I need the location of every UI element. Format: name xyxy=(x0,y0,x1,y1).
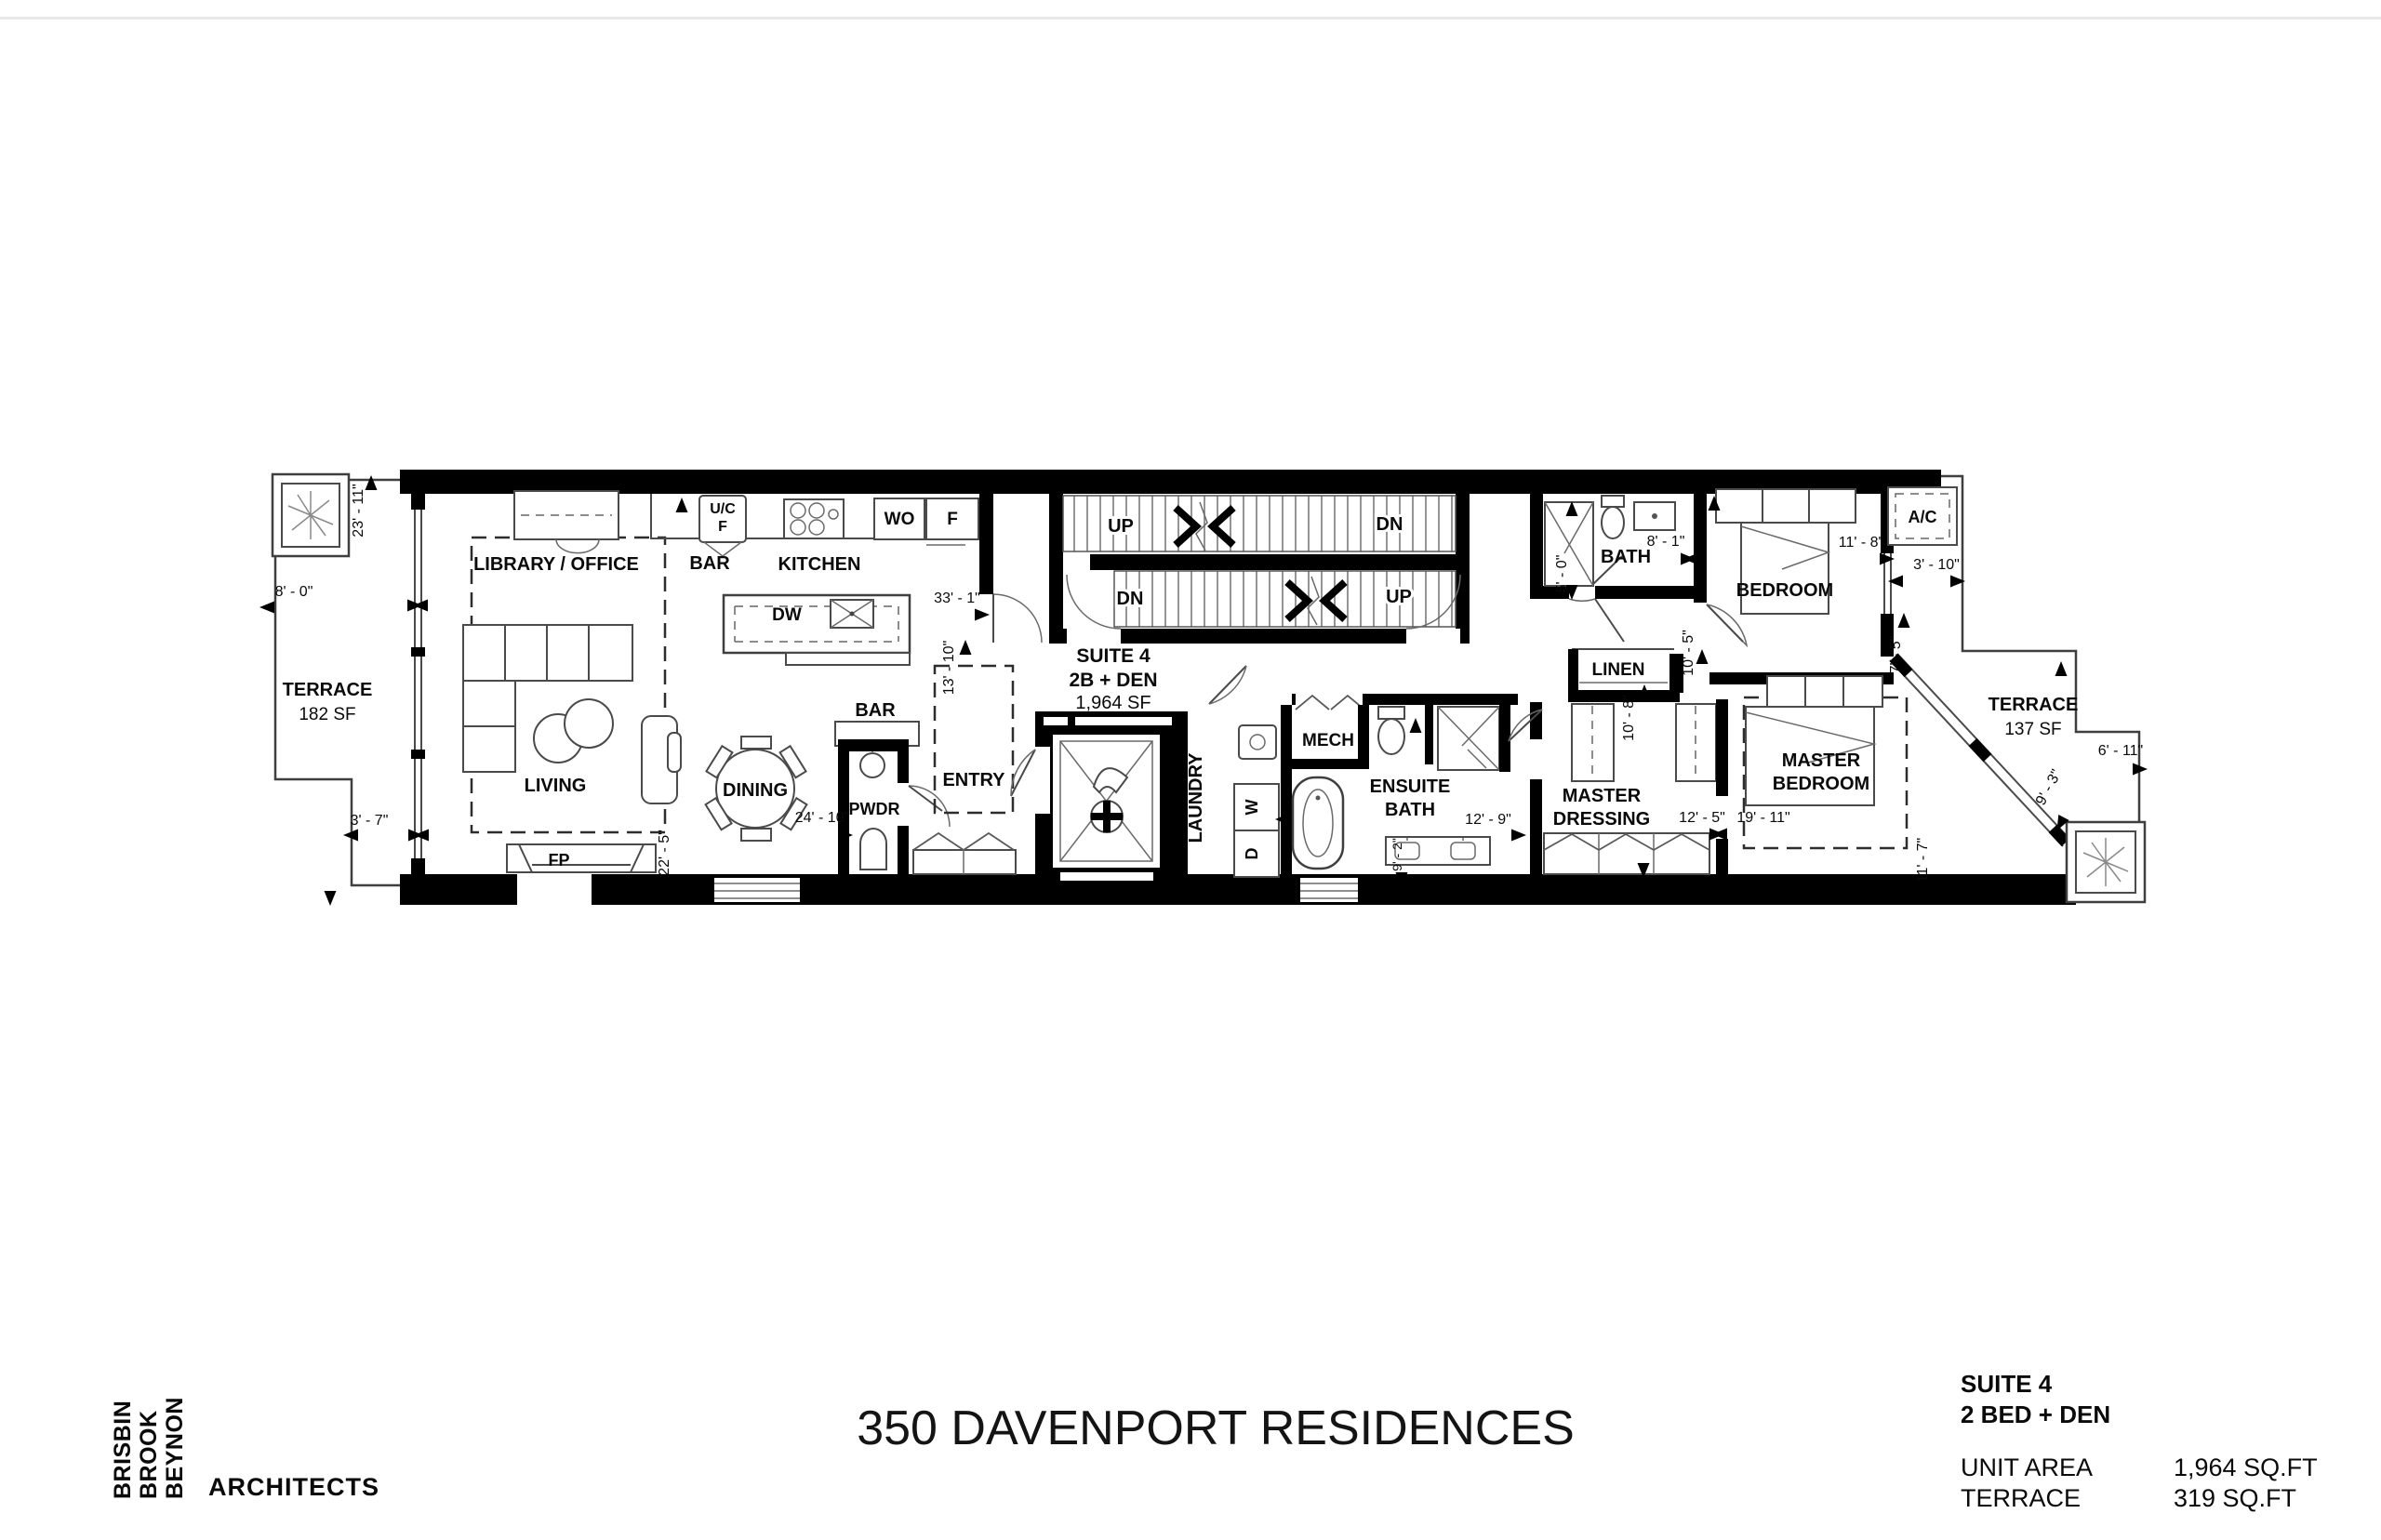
washer-label: W xyxy=(1243,800,1261,816)
fireplace-label: FP xyxy=(548,851,569,870)
desk-chair xyxy=(556,539,599,553)
entry-closet xyxy=(913,833,1016,874)
bar-dining-label: BAR xyxy=(855,700,896,721)
kitchen: U/C F WO F BAR KITCHEN xyxy=(651,494,979,665)
dim: 19' - 11" xyxy=(1736,810,1789,826)
logo-brisbin: BRISBIN xyxy=(110,1401,136,1499)
ac-label: A/C xyxy=(1909,508,1937,526)
elevator xyxy=(1011,711,1188,886)
bath-toilet xyxy=(1602,496,1624,538)
dim: 12' - 5" xyxy=(1679,810,1725,826)
info-terrace-value: 319 SQ.FT xyxy=(2174,1484,2296,1512)
fireplace: FP xyxy=(507,844,656,872)
terrace-left-area: 182 SF xyxy=(299,705,355,724)
dim: 8' - 1" xyxy=(1647,534,1685,550)
uc-f-label: F xyxy=(718,519,727,535)
wall-oven: WO xyxy=(874,498,924,539)
dim: 7' - 5" xyxy=(1888,636,1904,674)
suite-info-block: SUITE 4 2 BED + DEN UNIT AREA 1,964 SQ.F… xyxy=(1961,1370,2318,1512)
living-label: LIVING xyxy=(525,776,587,796)
kitchen-label: KITCHEN xyxy=(778,554,861,575)
hall-partition xyxy=(979,494,1042,643)
stair-up-label: UP xyxy=(1386,587,1412,607)
suite-area: 1,964 SF xyxy=(1075,693,1151,713)
dim: 9' - 3" xyxy=(2033,767,2065,808)
cooktop xyxy=(784,499,844,538)
staircase: UP DN DN UP xyxy=(1049,494,1470,644)
dim: 13' - 10" xyxy=(941,641,957,696)
powder-toilet xyxy=(860,829,886,870)
laundry-label: LAUNDRY xyxy=(1186,752,1206,843)
fridge: F xyxy=(926,498,978,545)
info-terrace-label: TERRACE xyxy=(1961,1484,2081,1512)
ensuite-label-1: ENSUITE xyxy=(1370,777,1451,797)
ensuite-shower xyxy=(1438,707,1499,770)
library-office-den: LIBRARY / OFFICE LIVING FP xyxy=(463,491,681,872)
bar-powder-entry: BAR PWDR ENTRY xyxy=(835,666,1016,874)
master-dressing-label-2: DRESSING xyxy=(1553,809,1650,830)
master-bedroom: MASTER BEDROOM xyxy=(1716,676,1907,874)
dim: 3' - 7" xyxy=(351,813,389,829)
bedroom-label: BEDROOM xyxy=(1736,580,1833,601)
lounge-chair xyxy=(642,716,681,803)
terrace-right-area: 137 SF xyxy=(2004,720,2061,739)
right-terrace: TERRACE 137 SF xyxy=(1941,476,2145,902)
stair-dn-label: DN xyxy=(1117,589,1144,609)
powder-label: PWDR xyxy=(849,800,900,818)
sheet-title: 350 DAVENPORT RESIDENCES xyxy=(857,1401,1575,1455)
library-office-label: LIBRARY / OFFICE xyxy=(473,554,639,575)
entry-label: ENTRY xyxy=(942,770,1005,790)
title-block: 350 DAVENPORT RESIDENCES xyxy=(857,1401,1575,1455)
dim: 11' - 7" xyxy=(1915,838,1931,883)
architect-logo: BRISBIN BROOK BEYNON ARCHITECTS xyxy=(110,1397,379,1501)
linen-label: LINEN xyxy=(1592,660,1645,680)
info-unit-area-label: UNIT AREA xyxy=(1961,1454,2093,1481)
dim: 11' - 8" xyxy=(1839,535,1883,551)
dining: DINING xyxy=(706,737,807,841)
bath-sink xyxy=(1634,502,1675,530)
dim: 12' - 9" xyxy=(1465,812,1511,828)
suite-identification: SUITE 4 2B + DEN 1,964 SF xyxy=(1069,645,1157,713)
dim: 33' - 1" xyxy=(934,591,980,606)
terrace-left-label: TERRACE xyxy=(283,680,373,700)
info-suite: SUITE 4 xyxy=(1961,1370,2053,1398)
floor-plan-drawing: TERRACE 182 SF LIBRARY / OFFICE LIVING F… xyxy=(0,0,2381,1540)
dishwasher-label: DW xyxy=(772,605,802,625)
laundry: LAUNDRY W D xyxy=(1186,666,1292,877)
sheet-seam xyxy=(0,17,2381,20)
dim: 23' - 11" xyxy=(351,484,366,537)
dim: 3' - 10" xyxy=(1913,557,1960,573)
stair-up-label: UP xyxy=(1108,516,1134,537)
master-bedroom-label-1: MASTER xyxy=(1782,750,1861,771)
logo-beynon: BEYNON xyxy=(162,1397,188,1499)
logo-brook: BROOK xyxy=(136,1410,162,1499)
info-type: 2 BED + DEN xyxy=(1961,1401,2110,1428)
suite-type: 2B + DEN xyxy=(1069,670,1157,691)
info-unit-area-value: 1,964 SQ.FT xyxy=(2174,1454,2318,1481)
dim: 10' - 5" xyxy=(1681,630,1696,676)
master-bedroom-label-2: BEDROOM xyxy=(1773,774,1869,794)
laundry-sink xyxy=(1239,725,1276,759)
ac-unit: A/C xyxy=(1888,487,1957,545)
bath-label: BATH xyxy=(1601,547,1651,567)
bedroom: BEDROOM xyxy=(1716,489,1856,614)
left-window-wall xyxy=(411,494,425,874)
mech-label: MECH xyxy=(1302,731,1354,750)
suite-number: SUITE 4 xyxy=(1076,645,1151,667)
fridge-label: F xyxy=(947,510,958,529)
stair-dn-label: DN xyxy=(1377,514,1403,535)
armchair xyxy=(565,699,613,748)
ensuite-toilet xyxy=(1378,707,1404,754)
terrace-right-label: TERRACE xyxy=(1989,695,2079,715)
dim: 9' - 2" xyxy=(1390,838,1404,871)
dim: 24' - 10" xyxy=(795,810,850,826)
ensuite-tub xyxy=(1293,777,1343,869)
kitchen-island: DW xyxy=(724,595,910,665)
wall-oven-label: WO xyxy=(885,510,915,529)
master-dressing-label-1: MASTER xyxy=(1563,786,1642,806)
floor-plan-sheet: TERRACE 182 SF LIBRARY / OFFICE LIVING F… xyxy=(0,0,2381,1540)
dim: 22' - 5" xyxy=(657,830,672,876)
dim: 6' - 11" xyxy=(2098,743,2143,759)
linen-closet: LINEN xyxy=(1568,649,1683,702)
logo-architects: ARCHITECTS xyxy=(208,1473,379,1501)
ensuite-label-2: BATH xyxy=(1385,800,1435,820)
dressing-closet xyxy=(1544,833,1709,874)
dining-label: DINING xyxy=(723,780,788,801)
dryer-label: D xyxy=(1243,848,1261,860)
dim: 8' - 0" xyxy=(275,584,313,600)
bar-kitchen-label: BAR xyxy=(689,553,730,574)
master-dressing: MASTER DRESSING xyxy=(1509,702,1716,874)
powder-sink xyxy=(860,753,885,777)
undercounter-fridge: U/C F xyxy=(699,496,746,556)
dim: 10' - 8" xyxy=(1621,695,1637,741)
uc-label: U/C xyxy=(710,501,736,517)
